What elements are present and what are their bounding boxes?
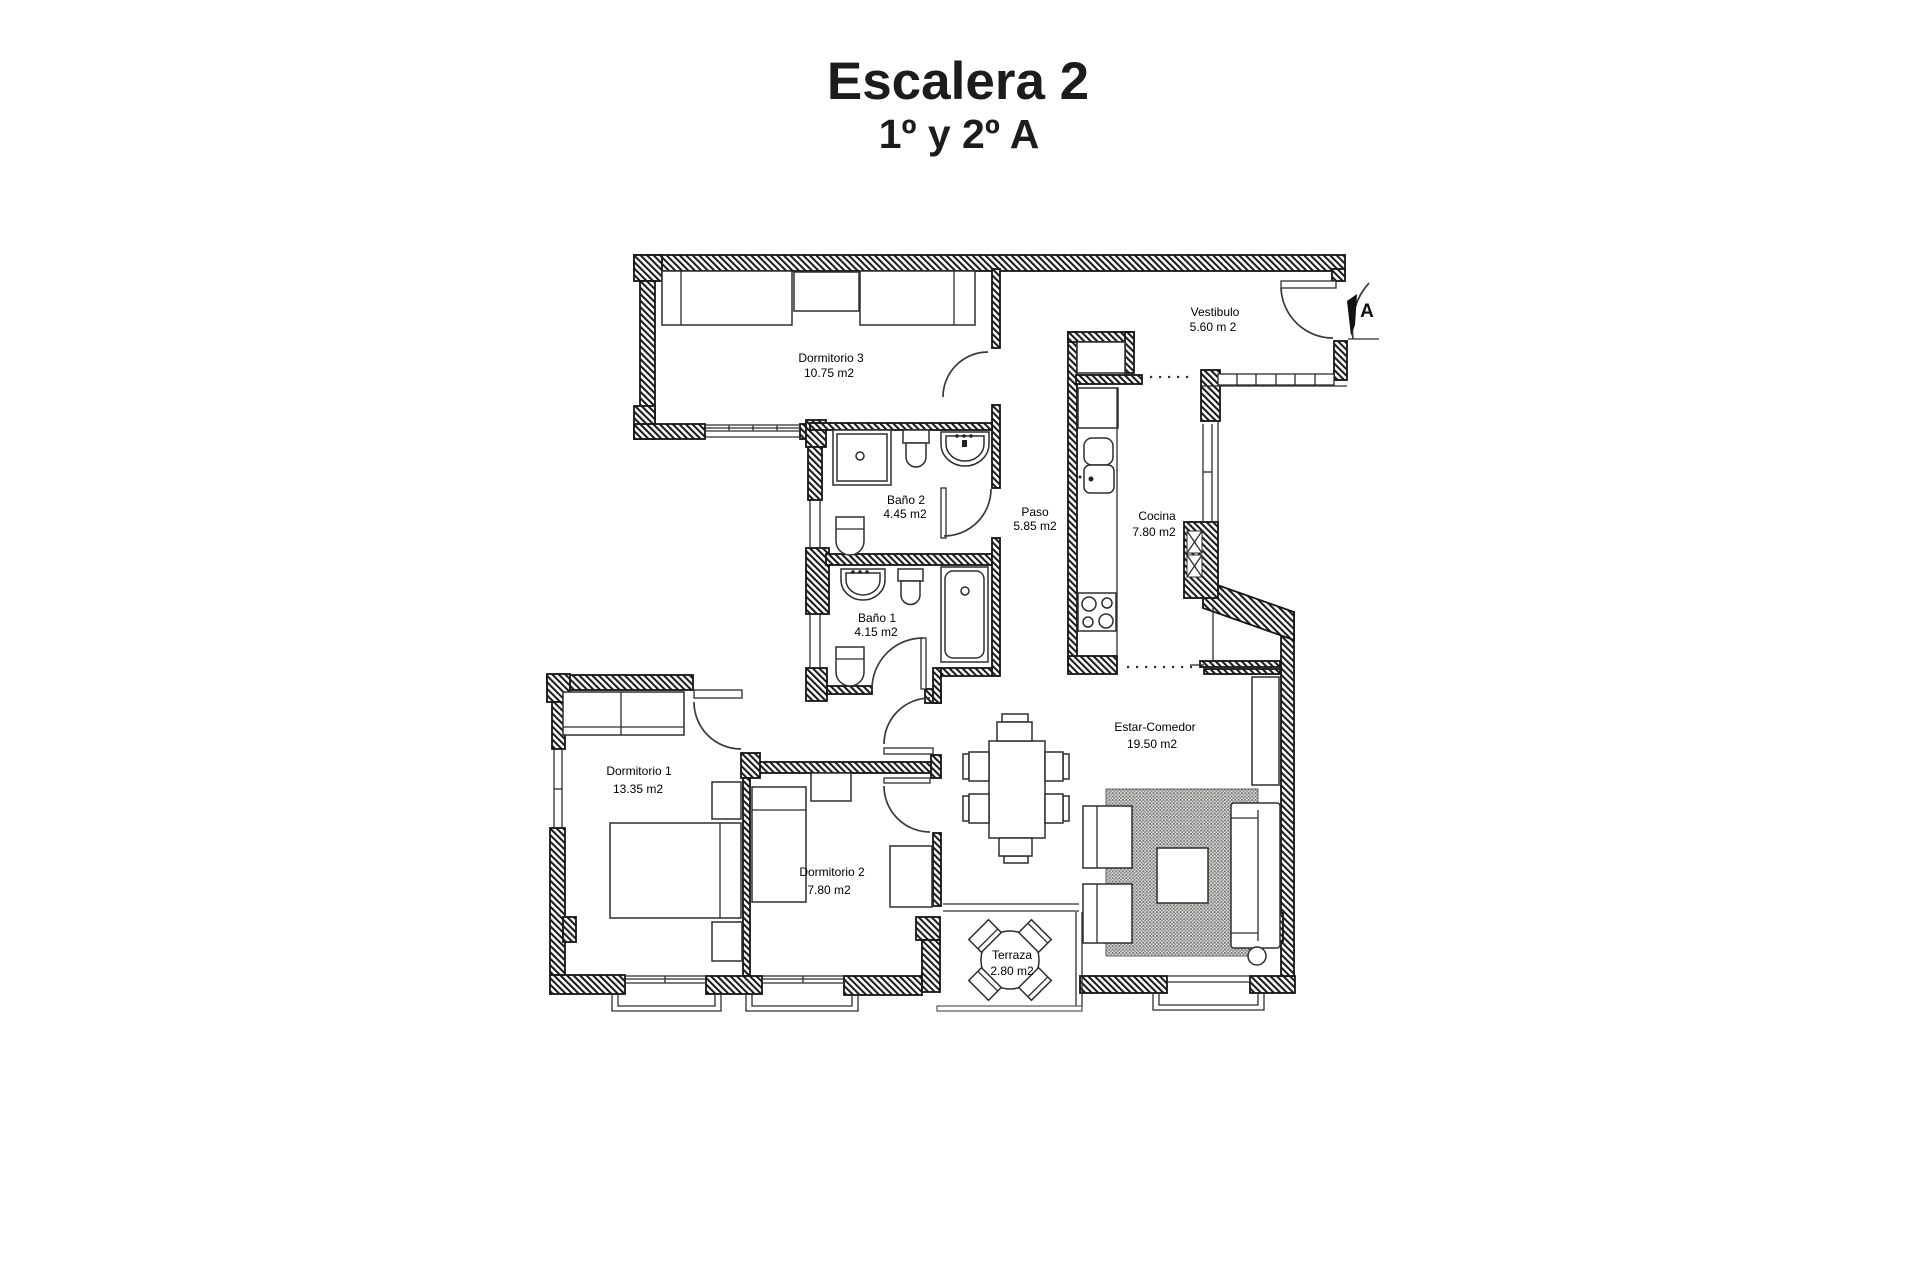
svg-text:5.85 m2: 5.85 m2 [1013, 519, 1057, 533]
svg-text:Dormitorio 3: Dormitorio 3 [798, 351, 864, 365]
svg-text:10.75 m2: 10.75 m2 [804, 366, 854, 380]
svg-text:Baño 1: Baño 1 [858, 611, 896, 625]
svg-text:5.60 m 2: 5.60 m 2 [1190, 320, 1237, 334]
svg-text:1º y 2º A: 1º y 2º A [879, 111, 1040, 157]
svg-text:Terraza: Terraza [992, 948, 1032, 962]
svg-text:Vestibulo: Vestibulo [1191, 305, 1240, 319]
svg-text:7.80 m2: 7.80 m2 [1132, 525, 1176, 539]
svg-text:2.80 m2: 2.80 m2 [990, 964, 1034, 978]
svg-text:Paso: Paso [1021, 505, 1049, 519]
svg-text:Escalera 2: Escalera 2 [827, 52, 1089, 111]
svg-text:13.35 m2: 13.35 m2 [613, 782, 663, 796]
svg-text:19.50 m2: 19.50 m2 [1127, 737, 1177, 751]
svg-text:Estar-Comedor: Estar-Comedor [1114, 720, 1195, 734]
svg-text:Cocina: Cocina [1138, 509, 1176, 523]
svg-text:Dormitorio 2: Dormitorio 2 [799, 865, 865, 879]
svg-text:Baño 2: Baño 2 [887, 493, 925, 507]
svg-text:4.45 m2: 4.45 m2 [883, 507, 927, 521]
svg-text:4.15 m2: 4.15 m2 [854, 625, 898, 639]
svg-text:Dormitorio 1: Dormitorio 1 [606, 764, 672, 778]
svg-text:7.80 m2: 7.80 m2 [807, 883, 851, 897]
svg-text:A: A [1360, 301, 1374, 322]
